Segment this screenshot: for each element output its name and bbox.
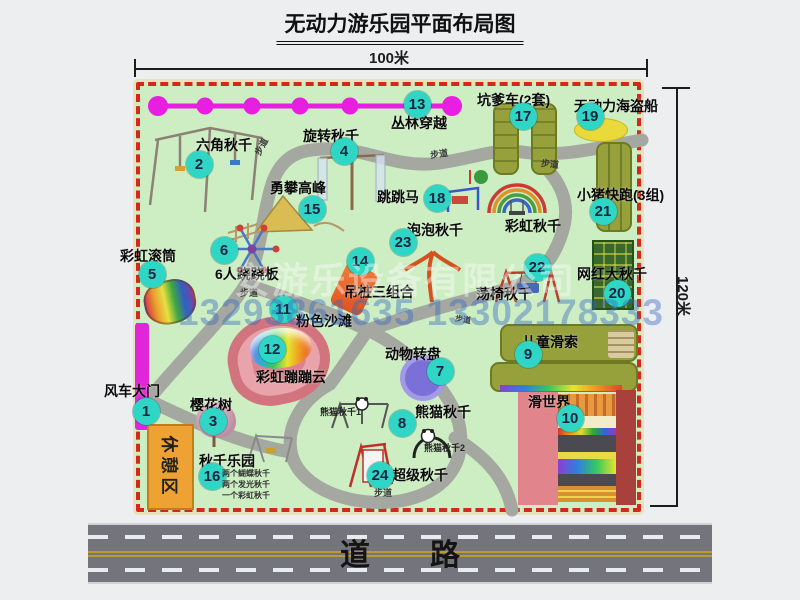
- attraction-number-4: 4: [331, 138, 358, 165]
- attraction-label-21: 小猪快跑(3组): [577, 185, 664, 205]
- attraction-number-13: 13: [404, 91, 431, 118]
- footpath-label: 步道: [540, 156, 559, 171]
- attraction-number-19: 19: [577, 103, 604, 130]
- footpath-label: 步道: [429, 146, 449, 161]
- footpath-label: 步道: [374, 486, 392, 499]
- attraction-label-18: 跳跳马: [377, 187, 419, 207]
- attraction-number-5: 5: [139, 261, 166, 288]
- attraction-number-1: 1: [133, 398, 160, 425]
- attraction-number-21: 21: [590, 198, 617, 225]
- sub-label-5: 一个彩虹秋千: [222, 490, 270, 501]
- attraction-label-15: 勇攀高峰: [270, 178, 326, 198]
- attraction-label-24: 超级秋千: [392, 465, 448, 485]
- sub-label-4: 两个发光秋千: [222, 479, 270, 490]
- attraction-number-10: 10: [557, 405, 584, 432]
- watermark-phone: 13293861635 13302178333: [178, 292, 664, 334]
- attraction-number-15: 15: [299, 196, 326, 223]
- attraction-number-12: 12: [259, 336, 286, 363]
- park-layout-plan: 无动力游乐园平面布局图 100米 120米: [0, 0, 800, 600]
- attraction-number-2: 2: [186, 151, 213, 178]
- sub-label-1: 熊猫秋千1: [320, 405, 361, 418]
- attraction-label-8: 熊猫秋千: [415, 402, 471, 422]
- attraction-number-3: 3: [200, 408, 227, 435]
- attraction-number-24: 24: [367, 462, 394, 489]
- attraction-number-9: 9: [515, 341, 542, 368]
- sub-label-0: 彩虹秋千: [505, 216, 561, 236]
- attraction-number-7: 7: [427, 358, 454, 385]
- attraction-label-12: 彩虹蹦蹦云: [256, 367, 326, 387]
- sub-label-2: 熊猫秋千2: [424, 441, 465, 454]
- footpath-label: 步道: [251, 135, 271, 157]
- sub-label-3: 两个蝴蝶秋千: [222, 468, 270, 479]
- attraction-number-18: 18: [424, 185, 451, 212]
- attraction-number-17: 17: [510, 103, 537, 130]
- attraction-number-8: 8: [389, 410, 416, 437]
